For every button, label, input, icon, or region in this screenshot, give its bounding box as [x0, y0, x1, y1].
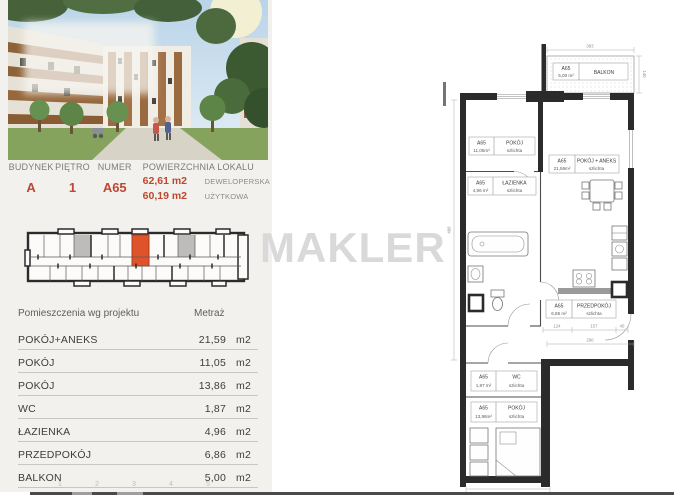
- room-name: POKÓJ: [506, 140, 523, 147]
- room-area: 13,86: [192, 380, 226, 392]
- area-kind: DEWELOPERSKA: [205, 177, 270, 186]
- blurred-logo-area: [24, 22, 154, 94]
- stove-symbol: [573, 270, 595, 287]
- room-area: 1,87 m²: [476, 383, 492, 388]
- room-row: ŁAZIENKA 4,96 m2: [18, 419, 258, 442]
- dim-hall-3: 40: [620, 324, 625, 329]
- toilet-symbol: [491, 290, 504, 311]
- pager-mark: 3: [132, 481, 136, 488]
- field-value: 1: [54, 180, 91, 195]
- room-name: POKÓJ: [18, 380, 192, 392]
- room-area: 1,87: [192, 403, 226, 415]
- room-name: BALKON: [594, 70, 615, 76]
- window: [628, 130, 634, 168]
- floor-overview-plan: [24, 226, 250, 296]
- rooms-table-header: Pomieszczenia wg projektu Metraż: [18, 308, 258, 319]
- window: [497, 94, 526, 100]
- shaft-symbol: [469, 295, 483, 311]
- highlighted-unit: [132, 235, 149, 266]
- room-area: 21,59m²: [554, 166, 571, 171]
- room-code: A65: [562, 66, 571, 72]
- rooms-table: Pomieszczenia wg projektu Metraż POKÓJ+A…: [18, 308, 258, 488]
- field-label: BUDYNEK: [8, 162, 54, 172]
- room-code: A65: [558, 159, 567, 165]
- window: [583, 94, 610, 100]
- bedroom-furniture: [470, 428, 540, 476]
- room-label-wc: A65 1,87 m² WC szlichta: [471, 371, 537, 391]
- rooms-header-area: Metraż: [194, 308, 258, 319]
- room-finish: szlichta: [507, 148, 523, 153]
- unit-header: BUDYNEK A PIĘTRO 1 NUMER A65 POWIERZCHNI…: [8, 162, 270, 202]
- counter-band: [558, 288, 612, 294]
- room-name: POKÓJ+ANEKS: [18, 334, 192, 346]
- room-name: WC: [18, 403, 192, 415]
- room-label-przedpokoj: A65 6,86 m² PRZEDPOKÓJ szlichta: [546, 300, 616, 318]
- rooms-header-name: Pomieszczenia wg projektu: [18, 308, 194, 319]
- area-value: 62,61 m2: [143, 175, 199, 187]
- field-value: A: [8, 180, 54, 195]
- unit-floorplan: 383 140 A65 5,00 m² BALKON: [438, 30, 672, 496]
- room-finish: szlichta: [507, 188, 523, 193]
- area-row: 62,61 m2 DEWELOPERSKA: [143, 175, 270, 187]
- room-unit: m2: [236, 449, 258, 461]
- left-panel: BUDYNEK A PIĘTRO 1 NUMER A65 POWIERZCHNI…: [0, 0, 272, 492]
- dim-top: 383: [586, 44, 594, 49]
- bottom-line-segment: [117, 492, 143, 495]
- dim-hall-2: 157: [590, 324, 598, 329]
- room-name: WC: [512, 375, 521, 381]
- shaft-symbol: [612, 282, 627, 297]
- room-code: A65: [555, 304, 564, 310]
- field-label: PIĘTRO: [54, 162, 91, 172]
- living-kitchen: [558, 180, 627, 297]
- room-label-pokoj1: A65 11,05m² POKÓJ szlichta: [469, 137, 535, 155]
- room-unit: m2: [236, 334, 258, 346]
- room-code: A65: [479, 375, 488, 381]
- room-code: A65: [476, 181, 485, 187]
- room-finish: szlichta: [586, 311, 602, 316]
- room-label-balkon: A65 5,00 m² BALKON: [553, 63, 628, 80]
- room-name: PRZEDPOKÓJ: [18, 449, 192, 461]
- field-label: NUMER: [91, 162, 139, 172]
- building-render-photo: [8, 0, 268, 160]
- field-value: A65: [91, 180, 139, 195]
- pager-mark: 4: [169, 481, 173, 488]
- room-row: POKÓJ 13,86 m2: [18, 373, 258, 396]
- wardrobe-symbol: [470, 428, 488, 476]
- room-label-aneks: A65 21,59m² POKÓJ + ANEKS szlichta: [549, 155, 619, 173]
- room-area: 6,86 m²: [551, 311, 567, 316]
- bed-symbol: [496, 428, 540, 476]
- room-area: 5,00 m²: [558, 73, 574, 78]
- dining-table-symbol: [582, 180, 622, 210]
- room-area: 13,86m²: [475, 414, 492, 419]
- room-name: POKÓJ: [508, 405, 525, 412]
- area-label: POWIERZCHNIA LOKALU: [143, 162, 270, 172]
- room-area: 4,96 m²: [473, 188, 489, 193]
- pager-mark: 5: [206, 481, 210, 488]
- room-code: A65: [477, 141, 486, 147]
- header-field-budynek: BUDYNEK A: [8, 162, 54, 202]
- room-code: A65: [479, 406, 488, 412]
- header-field-pietro: PIĘTRO 1: [54, 162, 91, 202]
- area-kind: UŻYTKOWA: [205, 192, 249, 201]
- room-unit: m2: [236, 472, 258, 484]
- room-label-pokoj2: A65 13,86m² POKÓJ szlichta: [471, 402, 537, 422]
- room-row: POKÓJ+ANEKS 21,59 m2: [18, 327, 258, 350]
- room-area: 21,59: [192, 334, 226, 346]
- sink-symbol: [468, 266, 483, 282]
- room-area: 4,96: [192, 426, 226, 438]
- dim-left: 466: [447, 226, 452, 234]
- bathroom-fixtures: [468, 232, 528, 311]
- apartment-listing-page: BUDYNEK A PIĘTRO 1 NUMER A65 POWIERZCHNI…: [0, 0, 674, 500]
- dim-corridor: 290: [586, 338, 594, 343]
- room-unit: m2: [236, 380, 258, 392]
- room-unit: m2: [236, 357, 258, 369]
- header-field-numer: NUMER A65: [91, 162, 139, 202]
- room-area: 11,05: [192, 357, 226, 369]
- room-row: WC 1,87 m2: [18, 396, 258, 419]
- room-finish: szlichta: [509, 383, 525, 388]
- room-row: PRZEDPOKÓJ 6,86 m2: [18, 442, 258, 465]
- bathtub-symbol: [468, 232, 528, 256]
- room-finish: szlichta: [589, 166, 605, 171]
- dim-hall-1: 124: [553, 324, 561, 329]
- room-row: POKÓJ 11,05 m2: [18, 350, 258, 373]
- ground: [8, 128, 268, 160]
- room-name: POKÓJ + ANEKS: [577, 158, 617, 165]
- header-field-area: POWIERZCHNIA LOKALU 62,61 m2 DEWELOPERSK…: [139, 162, 270, 202]
- pager-mark: 2: [95, 481, 99, 488]
- kitchen-counter: [558, 226, 627, 297]
- room-area: 6,86: [192, 449, 226, 461]
- bottom-line-segment: [72, 492, 92, 495]
- room-area: 11,05m²: [473, 148, 490, 153]
- room-unit: m2: [236, 403, 258, 415]
- room-name: PRZEDPOKÓJ: [577, 303, 611, 310]
- room-unit: m2: [236, 426, 258, 438]
- room-name: ŁAZIENKA: [18, 426, 192, 438]
- room-label-lazienka: A65 4,96 m² ŁAZIENKA szlichta: [468, 177, 536, 195]
- area-row: 60,19 m2 UŻYTKOWA: [143, 190, 270, 202]
- pager-mark: 1: [58, 481, 62, 488]
- pager-marks: 1 2 3 4 5: [58, 481, 210, 488]
- room-name: POKÓJ: [18, 357, 192, 369]
- area-value: 60,19 m2: [143, 190, 199, 202]
- makler-watermark: MAKLER: [260, 227, 446, 269]
- dim-balcony-side: 140: [642, 70, 647, 78]
- room-name: ŁAZIENKA: [502, 181, 527, 187]
- room-finish: szlichta: [509, 414, 525, 419]
